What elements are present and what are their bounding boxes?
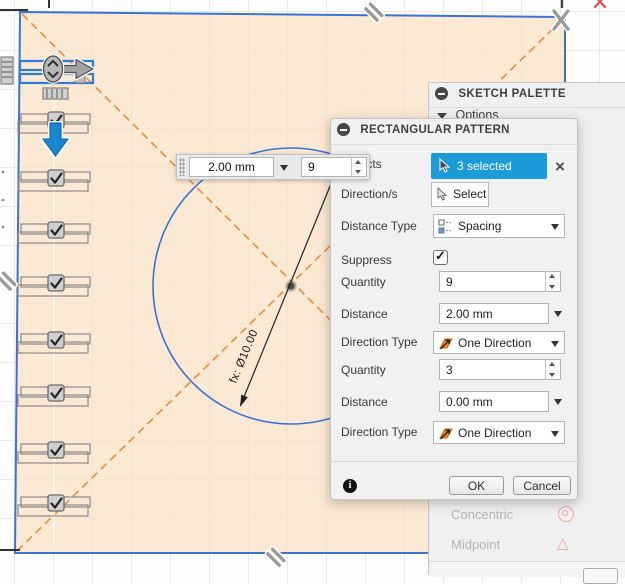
suppress-label: Suppress bbox=[341, 253, 392, 267]
quantity2-label: Quantity bbox=[341, 363, 386, 377]
inline-quantity-spinner[interactable] bbox=[351, 157, 366, 177]
direction-select-button[interactable]: Select bbox=[431, 182, 489, 207]
distance1-label: Distance bbox=[341, 307, 388, 321]
one-direction-icon bbox=[437, 426, 454, 441]
distance2-dropdown-icon[interactable] bbox=[554, 399, 562, 405]
palette-title: SKETCH PALETTE bbox=[458, 88, 566, 100]
quantity1-label: Quantity bbox=[341, 275, 386, 289]
direction-type1-dropdown[interactable]: One Direction bbox=[433, 331, 565, 354]
drag-handle-icon[interactable] bbox=[179, 158, 185, 176]
inline-quantity-value: 9 bbox=[308, 160, 315, 174]
instance-suppress-checkbox[interactable] bbox=[48, 385, 64, 401]
quantity2-value: 3 bbox=[446, 363, 453, 377]
palette-grip-icon[interactable] bbox=[435, 87, 448, 100]
quantity1-value: 9 bbox=[446, 275, 453, 289]
direction-type1-value: One Direction bbox=[458, 336, 531, 350]
dialog-header[interactable]: RECTANGULAR PATTERN bbox=[331, 119, 577, 145]
palette-partial-button[interactable] bbox=[583, 568, 618, 584]
instance-suppress-checkbox[interactable] bbox=[48, 495, 64, 511]
distance1-value: 2.00 mm bbox=[446, 307, 493, 321]
distance-type-dropdown[interactable]: Spacing bbox=[433, 214, 565, 238]
distance-type-value: Spacing bbox=[458, 219, 501, 233]
quantity2-input[interactable]: 3 bbox=[439, 359, 561, 380]
palette-item-concentric[interactable]: Concentric bbox=[429, 503, 625, 527]
distance2-input[interactable]: 0.00 mm bbox=[439, 391, 549, 412]
inline-distance-dropdown-icon[interactable] bbox=[280, 165, 288, 171]
distance1-input[interactable]: 2.00 mm bbox=[439, 303, 549, 324]
left-edge-dots bbox=[2, 171, 5, 229]
red-constraint-marker bbox=[595, 0, 605, 7]
directions-label: Direction/s bbox=[341, 187, 398, 201]
left-edge-hatch-icon bbox=[1, 57, 13, 84]
quantity1-spinner[interactable] bbox=[545, 271, 560, 292]
clear-selection-icon[interactable]: × bbox=[555, 158, 565, 175]
parallel-constraint-icon[interactable] bbox=[0, 273, 15, 289]
distance1-dropdown-icon[interactable] bbox=[554, 311, 562, 317]
chevron-down-icon bbox=[551, 431, 559, 437]
fusion-canvas: { "canvas": { "dimension_label": "fx: Ø1… bbox=[0, 0, 625, 575]
quantity2-spinner[interactable] bbox=[545, 359, 560, 380]
chevron-down-icon bbox=[551, 341, 559, 347]
direction-type2-value: One Direction bbox=[458, 426, 531, 440]
ok-button[interactable]: OK bbox=[449, 476, 504, 495]
direction-type2-label: Direction Type bbox=[341, 425, 417, 439]
spacing-icon bbox=[438, 219, 453, 234]
distance2-label: Distance bbox=[341, 395, 388, 409]
distance-type-label: Distance Type bbox=[341, 219, 417, 233]
quantity1-input[interactable]: 9 bbox=[439, 271, 561, 292]
info-icon[interactable]: i bbox=[343, 479, 357, 493]
midpoint-label: Midpoint bbox=[451, 537, 500, 552]
cursor-icon bbox=[438, 158, 452, 174]
concentric-label: Concentric bbox=[451, 507, 513, 522]
inline-edit-toolbar: 2.00 mm 9 bbox=[176, 154, 370, 180]
direction-flip-control[interactable] bbox=[44, 56, 63, 82]
instance-suppress-checkbox[interactable] bbox=[48, 332, 64, 348]
suppress-checkbox[interactable] bbox=[433, 250, 448, 265]
objects-selected-button[interactable]: 3 selected bbox=[431, 153, 547, 179]
instance-suppress-checkbox[interactable] bbox=[48, 222, 64, 238]
palette-header[interactable]: SKETCH PALETTE bbox=[429, 83, 625, 108]
inline-distance-input[interactable]: 2.00 mm bbox=[189, 157, 274, 177]
distance2-value: 0.00 mm bbox=[446, 395, 493, 409]
objects-selected-count: 3 selected bbox=[457, 159, 512, 173]
dialog-grip-icon[interactable] bbox=[337, 123, 350, 136]
concentric-icon bbox=[558, 506, 574, 522]
cancel-button[interactable]: Cancel bbox=[513, 476, 571, 495]
inline-quantity-input[interactable]: 9 bbox=[301, 157, 367, 177]
footer-divider bbox=[331, 461, 577, 462]
cursor-icon bbox=[436, 187, 449, 202]
midpoint-triangle-icon: △ bbox=[557, 534, 569, 552]
instance-suppress-checkbox[interactable] bbox=[48, 170, 64, 186]
dialog-title: RECTANGULAR PATTERN bbox=[360, 124, 509, 136]
instance-suppress-checkbox[interactable] bbox=[48, 275, 64, 291]
hatch-glyph bbox=[43, 88, 68, 99]
direction-select-text: Select bbox=[453, 187, 486, 201]
direction-type2-dropdown[interactable]: One Direction bbox=[433, 421, 565, 444]
chevron-down-icon bbox=[551, 224, 559, 230]
palette-item-midpoint[interactable]: Midpoint △ bbox=[429, 533, 625, 557]
direction-type1-label: Direction Type bbox=[341, 335, 417, 349]
one-direction-icon bbox=[437, 336, 454, 351]
instance-suppress-checkbox[interactable] bbox=[48, 442, 64, 458]
